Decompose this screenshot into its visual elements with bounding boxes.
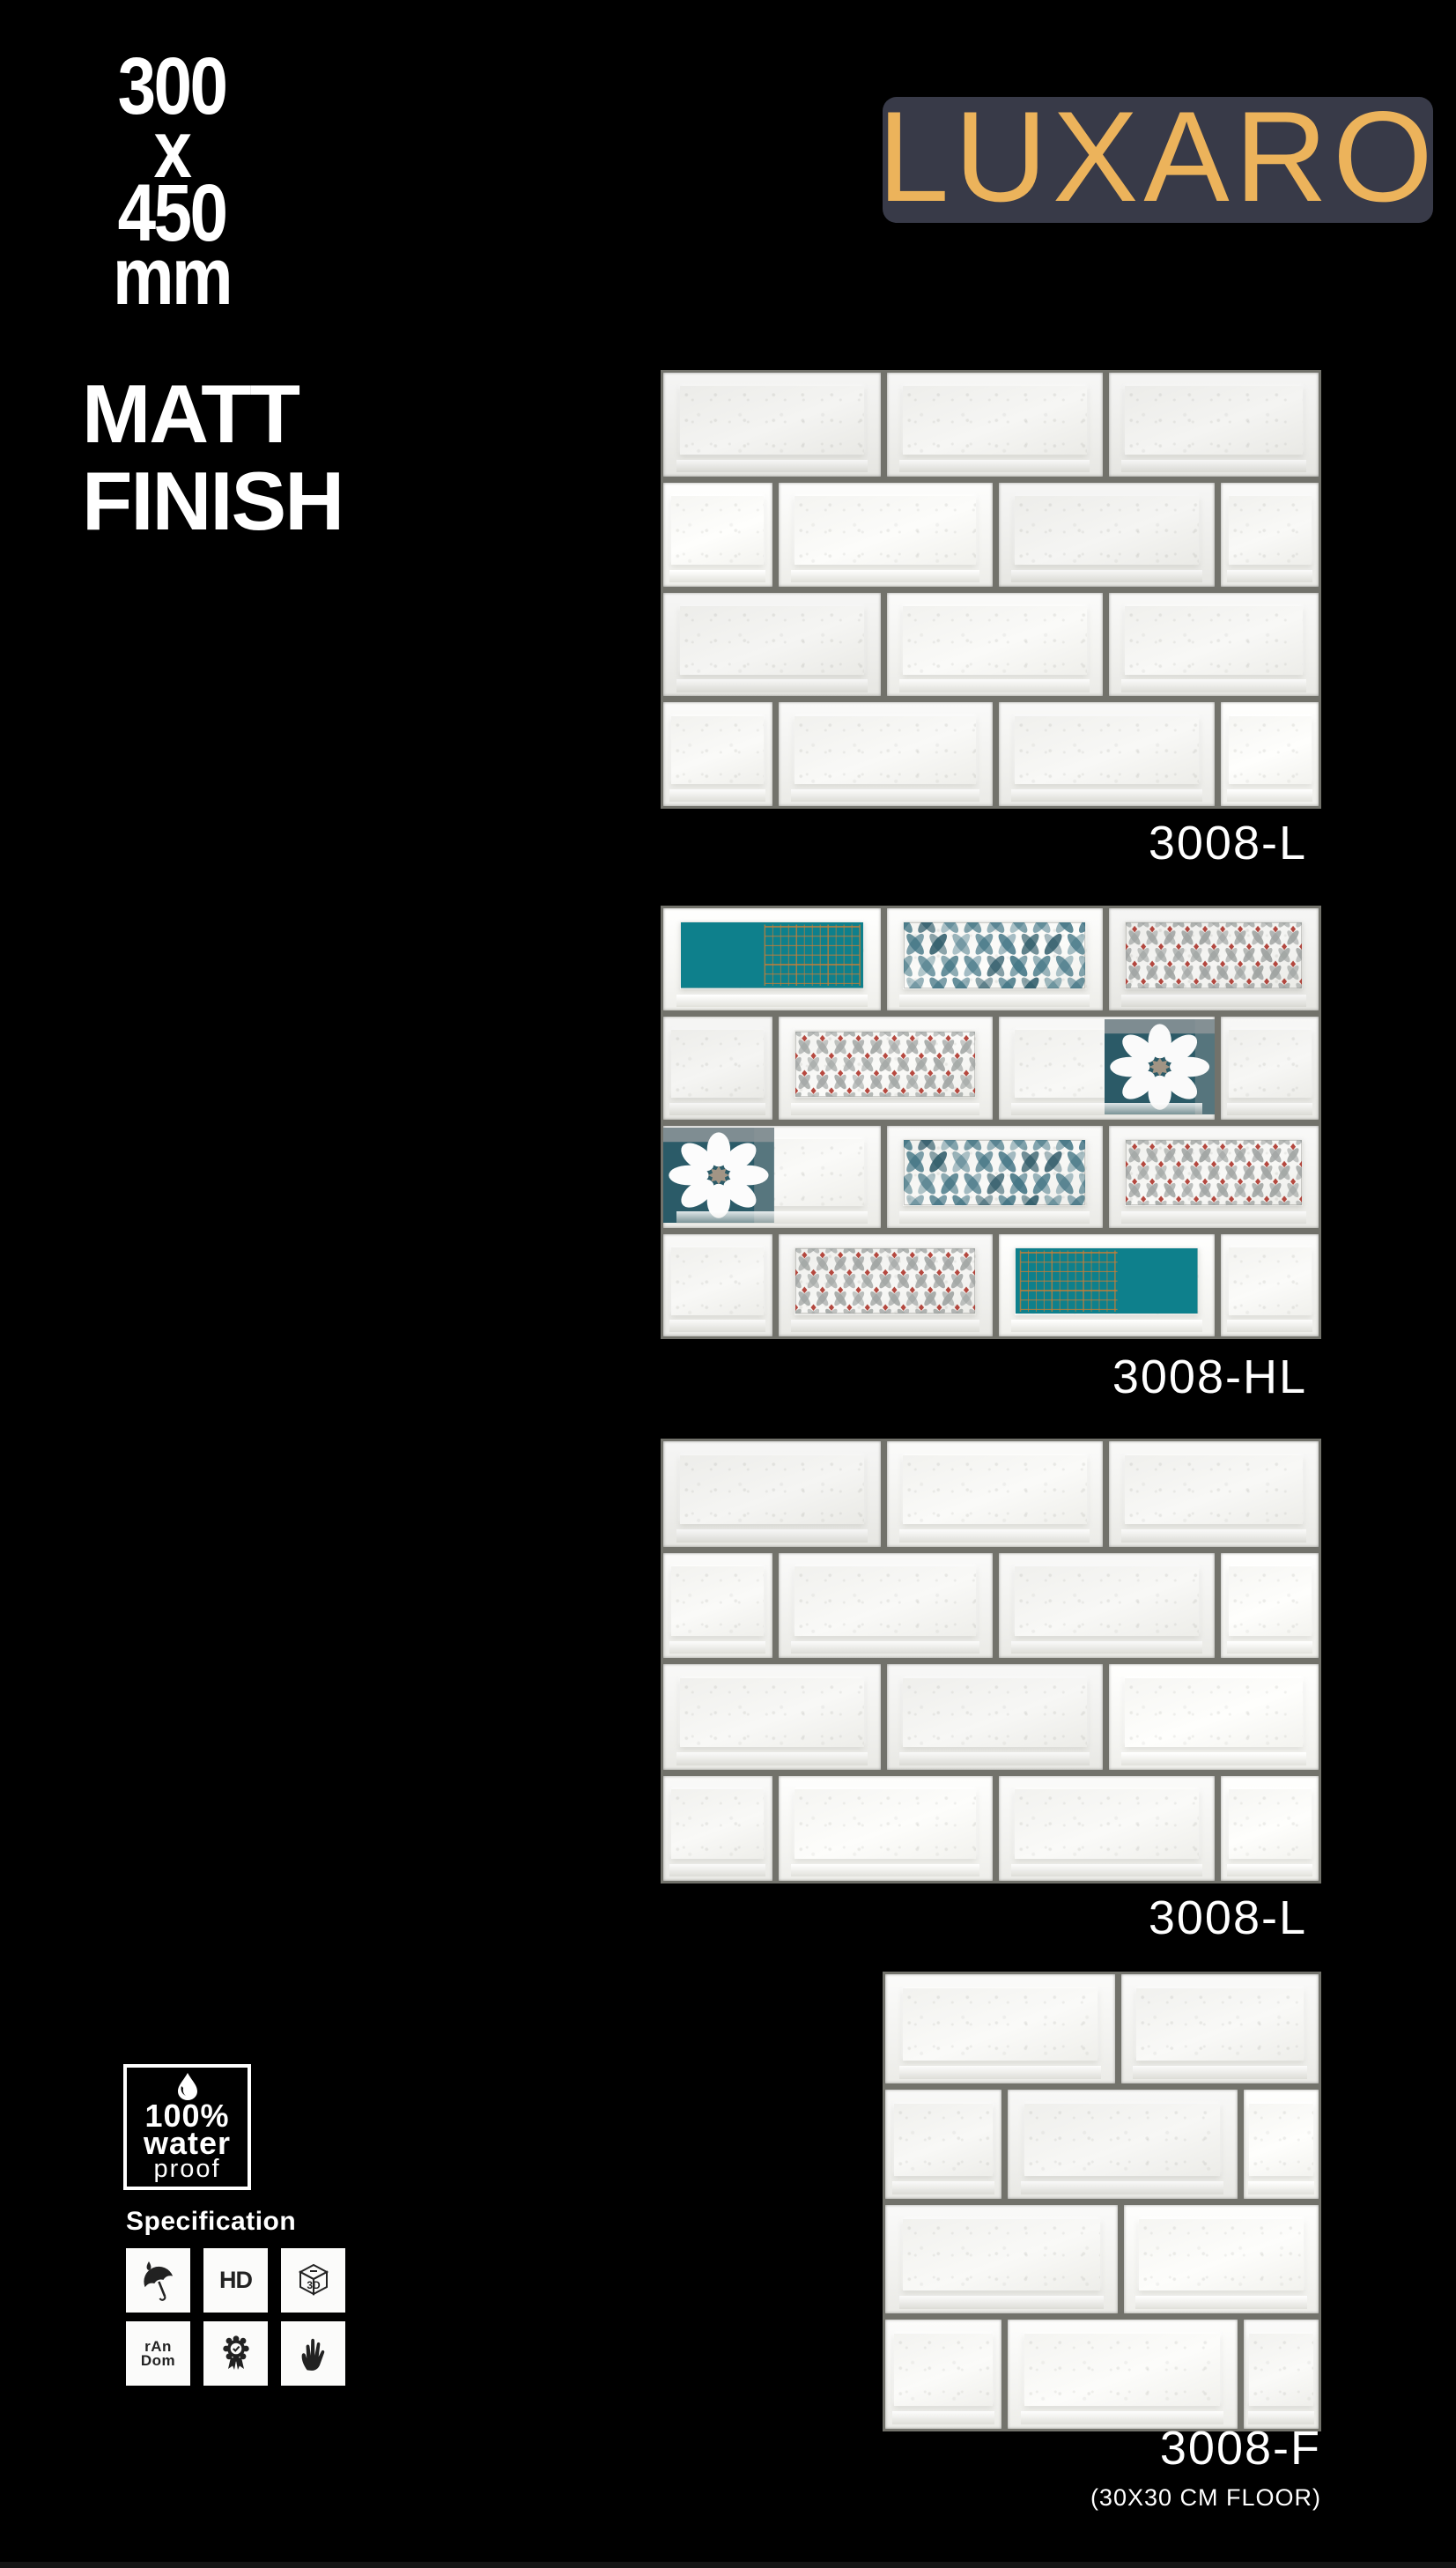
decor-teal_plaid bbox=[1016, 1248, 1198, 1314]
tile-brick-face bbox=[1125, 1455, 1303, 1525]
tile-brick-face bbox=[671, 1030, 764, 1098]
quality-certified-award-icon bbox=[203, 2321, 268, 2386]
hand-crafted-icon bbox=[281, 2321, 345, 2386]
waterproof-word2: proof bbox=[153, 2157, 220, 2182]
tile-brick bbox=[885, 1974, 1115, 2083]
random-label-bottom: Dom bbox=[141, 2354, 175, 2368]
tile-brick bbox=[885, 2205, 1118, 2314]
tile-brick bbox=[999, 483, 1216, 587]
tile-brick bbox=[1221, 483, 1319, 587]
tile-brick bbox=[999, 1553, 1216, 1659]
waterproof-badge: 100% water proof bbox=[123, 2064, 251, 2190]
tile-brick bbox=[999, 1017, 1216, 1119]
tile-brick bbox=[1109, 373, 1319, 477]
tile-brick-face bbox=[1015, 1566, 1199, 1636]
random-design-icon: rAn Dom bbox=[126, 2321, 190, 2386]
tile-brick-face bbox=[1024, 2104, 1220, 2176]
water-resistant-umbrella-icon bbox=[126, 2248, 190, 2313]
tile-brick bbox=[1244, 2090, 1319, 2199]
tile-brick bbox=[1008, 2320, 1238, 2429]
tile-brick bbox=[1221, 1017, 1319, 1119]
tile-brick-face bbox=[671, 1789, 764, 1859]
tile-brick bbox=[885, 2320, 1001, 2429]
tile-brick bbox=[663, 702, 772, 806]
tile-brick bbox=[663, 908, 881, 1010]
tile-brick bbox=[887, 593, 1103, 697]
tile-brick-face bbox=[671, 1566, 764, 1636]
tile-brick bbox=[1221, 702, 1319, 806]
tile-brick-face bbox=[1229, 496, 1312, 565]
tile-brick bbox=[779, 1553, 993, 1659]
tile-brick bbox=[887, 1441, 1103, 1547]
tile-brick bbox=[1221, 1553, 1319, 1659]
tile-brick-face bbox=[903, 606, 1087, 675]
tile-brick-face bbox=[795, 1566, 976, 1636]
decor-flower-tile bbox=[663, 1128, 774, 1223]
tile-swatch-3008-HL bbox=[661, 906, 1321, 1339]
tile-brick bbox=[999, 702, 1216, 806]
tile-brick bbox=[779, 483, 993, 587]
decor-teal_plaid bbox=[681, 922, 863, 988]
tile-brick bbox=[1244, 2320, 1319, 2429]
tile-brick-face bbox=[1229, 1566, 1312, 1636]
tile-brick bbox=[779, 702, 993, 806]
tile-brick-face bbox=[903, 1455, 1087, 1525]
tile-brick bbox=[663, 1234, 772, 1336]
tile-brick bbox=[1124, 2205, 1319, 2314]
tile-brick-face bbox=[1125, 1678, 1303, 1748]
tile-brick-face bbox=[1125, 606, 1303, 675]
floor-size-note: (30X30 CM FLOOR) bbox=[883, 2484, 1321, 2512]
tile-brick-face bbox=[795, 496, 976, 565]
tile-brick-face bbox=[1249, 2104, 1313, 2176]
tile-brick bbox=[1109, 1126, 1319, 1228]
tile-brick-face bbox=[1229, 1789, 1312, 1859]
tile-brick bbox=[887, 373, 1103, 477]
tile-brick-face bbox=[671, 1247, 764, 1315]
3d-design-cube-icon: 3D bbox=[281, 2248, 345, 2313]
tile-brick-face bbox=[1024, 2334, 1220, 2406]
tile-brick bbox=[1221, 1234, 1319, 1336]
tile-brick bbox=[887, 1126, 1103, 1228]
tile-brick bbox=[999, 1776, 1216, 1882]
brand-logo-text: LUXARO bbox=[877, 93, 1438, 221]
product-code-label: 3008-L bbox=[661, 816, 1307, 870]
tile-brick-face bbox=[894, 2104, 993, 2176]
tile-brick-face bbox=[671, 716, 764, 785]
tile-brick bbox=[663, 593, 881, 697]
tile-brick-face bbox=[1136, 1988, 1304, 2061]
tile-brick bbox=[663, 1553, 772, 1659]
tile-brick bbox=[885, 2090, 1001, 2199]
tile-brick-face bbox=[795, 1789, 976, 1859]
tile-brick bbox=[663, 373, 881, 477]
tile-brick bbox=[1121, 1974, 1319, 2083]
tile-brick-face bbox=[680, 1455, 865, 1525]
decor-flower-tile bbox=[1105, 1019, 1215, 1114]
tile-brick bbox=[1109, 1664, 1319, 1770]
tile-brick bbox=[887, 908, 1103, 1010]
tile-brick bbox=[1221, 1776, 1319, 1882]
tile-brick bbox=[1109, 1441, 1319, 1547]
catalog-page: 300 x 450 mm LUXARO MATT FINISH 3008-L 3… bbox=[0, 0, 1456, 2568]
tile-brick-face bbox=[1139, 2219, 1304, 2291]
tile-brick-face bbox=[1229, 1247, 1312, 1315]
tile-brick-face bbox=[1249, 2334, 1313, 2406]
decor-diamonds_red bbox=[1126, 922, 1302, 988]
specification-icon-grid: HD 3D rAn Dom bbox=[126, 2248, 345, 2386]
tile-brick-face bbox=[680, 606, 865, 675]
bottom-edge-strip bbox=[0, 2562, 1456, 2568]
tile-brick bbox=[1008, 2090, 1238, 2199]
tile-brick bbox=[779, 1017, 993, 1119]
tile-brick-face bbox=[894, 2334, 993, 2406]
tile-size-label: 300 x 450 mm bbox=[82, 55, 262, 308]
waterproof-word: water bbox=[144, 2130, 231, 2157]
finish-title-line: MATT bbox=[82, 370, 343, 457]
brand-logo: LUXARO bbox=[883, 97, 1433, 223]
tile-brick-face bbox=[1229, 1030, 1312, 1098]
tile-brick-face bbox=[795, 716, 976, 785]
tile-brick-face bbox=[680, 386, 865, 455]
tile-brick bbox=[1109, 593, 1319, 697]
tile-swatch-3008-L bbox=[661, 1439, 1321, 1883]
tile-brick-face bbox=[1229, 716, 1312, 785]
tile-brick bbox=[663, 1017, 772, 1119]
cube-3d-label: 3D bbox=[307, 2279, 321, 2291]
tile-brick bbox=[663, 1776, 772, 1882]
tile-swatch-3008-F bbox=[883, 1972, 1321, 2431]
tile-brick bbox=[779, 1234, 993, 1336]
tile-brick-face bbox=[903, 386, 1087, 455]
product-code-label: 3008-HL bbox=[661, 1350, 1307, 1404]
tile-brick-face bbox=[903, 1678, 1087, 1748]
decor-diamonds_red bbox=[795, 1032, 975, 1097]
tile-swatch-3008-L bbox=[661, 370, 1321, 809]
tile-brick-face bbox=[671, 496, 764, 565]
tile-brick-face bbox=[680, 1678, 865, 1748]
tile-brick bbox=[779, 1776, 993, 1882]
tile-brick bbox=[1109, 908, 1319, 1010]
decor-diamonds_red bbox=[795, 1248, 975, 1314]
size-line: mm bbox=[82, 245, 262, 308]
tile-brick-face bbox=[1015, 496, 1199, 565]
finish-title: MATT FINISH bbox=[82, 370, 343, 544]
hd-icon-label: HD bbox=[219, 2267, 252, 2294]
tile-brick bbox=[887, 1664, 1103, 1770]
tile-brick-face bbox=[903, 2219, 1100, 2291]
specification-title: Specification bbox=[126, 2207, 296, 2237]
finish-title-line: FINISH bbox=[82, 457, 343, 544]
tile-brick bbox=[663, 1126, 881, 1228]
hd-icon: HD bbox=[203, 2248, 268, 2313]
decor-petals_blue bbox=[904, 922, 1085, 988]
tile-brick bbox=[663, 483, 772, 587]
decor-petals_blue bbox=[904, 1140, 1085, 1205]
decor-diamonds_red bbox=[1126, 1140, 1302, 1205]
tile-brick-face bbox=[1015, 1789, 1199, 1859]
tile-brick bbox=[999, 1234, 1216, 1336]
tile-brick-face bbox=[903, 1988, 1098, 2061]
product-code-label: 3008-L bbox=[661, 1891, 1307, 1945]
product-code-label: 3008-F bbox=[883, 2421, 1321, 2475]
tile-brick bbox=[663, 1664, 881, 1770]
tile-brick-face bbox=[1015, 716, 1199, 785]
tile-brick bbox=[663, 1441, 881, 1547]
tile-brick-face bbox=[1125, 386, 1303, 455]
